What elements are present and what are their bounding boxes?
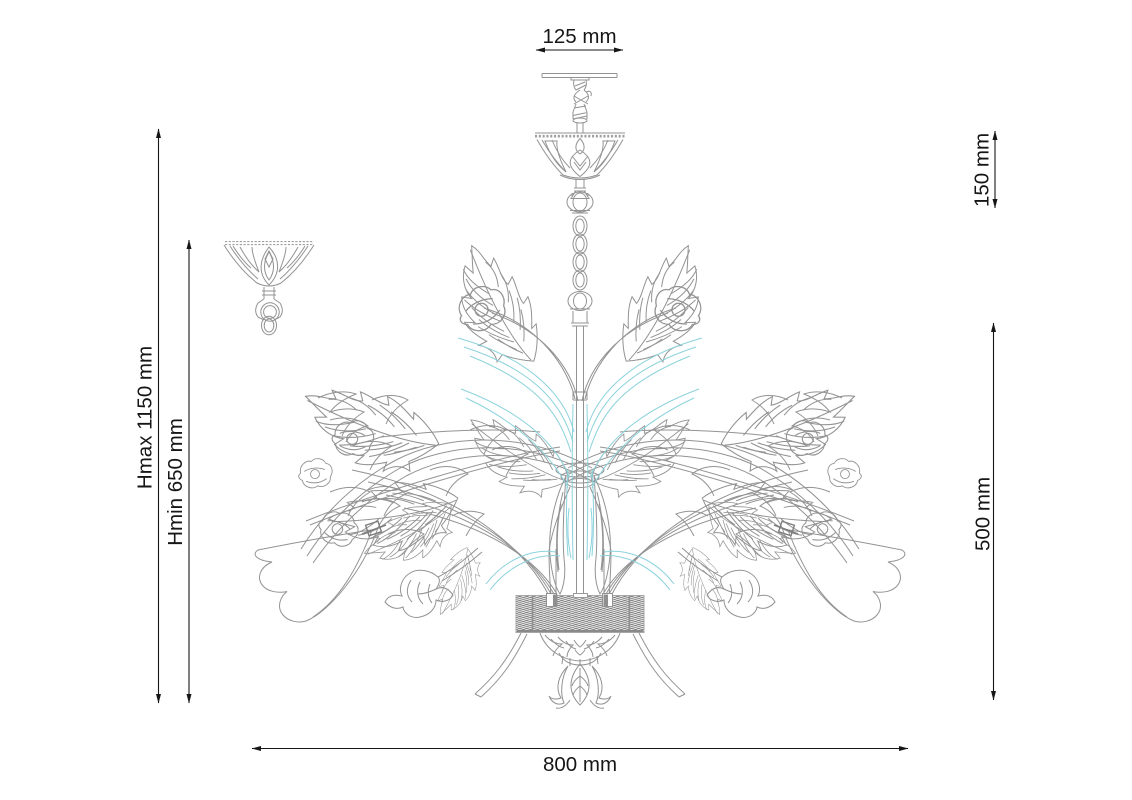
- svg-text:Hmax 1150 mm: Hmax 1150 mm: [134, 346, 157, 489]
- svg-text:150 mm: 150 mm: [971, 133, 994, 207]
- svg-text:Hmin 650 mm: Hmin 650 mm: [164, 418, 187, 546]
- svg-text:125 mm: 125 mm: [542, 25, 616, 48]
- svg-text:500 mm: 500 mm: [972, 477, 995, 551]
- svg-text:800 mm: 800 mm: [543, 753, 617, 776]
